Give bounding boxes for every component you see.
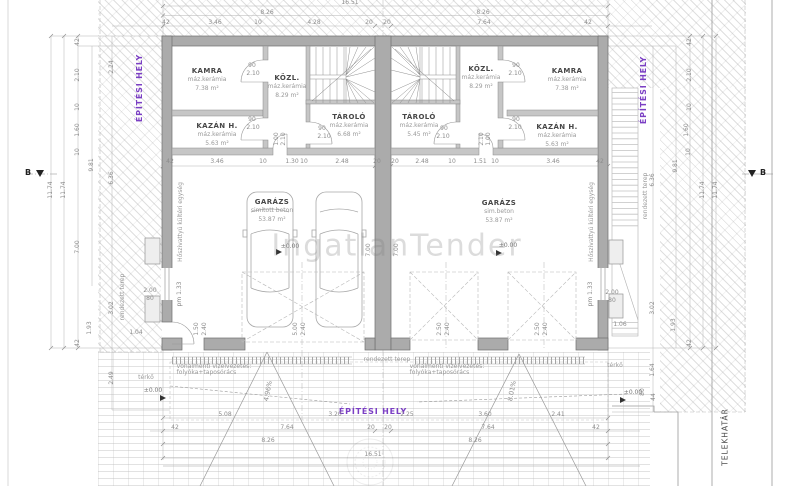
dim-label: 10 (686, 148, 692, 156)
dim-label: 7.00 (394, 243, 400, 256)
dim-label: 90 (248, 63, 256, 69)
dim-label: 10 (300, 159, 308, 165)
drain-note-right: vonalmenti vízelvezetés: folyóka+taposór… (410, 364, 485, 376)
dim-label: 10 (75, 148, 81, 156)
dim-label: 2.40 (543, 322, 549, 335)
dim-label: 2.40 (202, 322, 208, 335)
dim-label: 44 (651, 393, 657, 401)
epitesi-hely-right: ÉPÍTÉSI HELY (640, 56, 648, 124)
dim-label: 10 (687, 103, 693, 111)
dim-label: 3.02 (650, 301, 656, 314)
dim-label: 90 (248, 117, 256, 123)
dim-label: 2.10 (246, 125, 259, 131)
dim-label: 11.74 (48, 181, 54, 198)
dim-label: 1.64 (650, 363, 656, 376)
dim-label: 3.46 (208, 20, 221, 26)
section-marker-left: B (25, 169, 31, 177)
epitesi-hely-bottom: ÉPÍTÉSI HELY (339, 408, 407, 416)
dim-label: 8.26 (468, 438, 481, 444)
dim-label: 7.64 (280, 425, 293, 431)
room-right-kazan: KAZÁN H. máz.kerámia 5.63 m² (536, 123, 577, 149)
dim-label: 7.00 (366, 243, 372, 256)
dim-label: 1.06 (613, 322, 626, 328)
dim-label: 1.60 (684, 123, 690, 136)
dim-label: 7.64 (481, 425, 494, 431)
dim-label: 2.40 (445, 322, 451, 335)
dim-label: 1.60 (75, 123, 81, 136)
floor-plan: KAMRA máz.kerámia 7.38 m² KÖZL. máz.kerá… (0, 0, 800, 486)
dim-label: 2.48 (335, 159, 348, 165)
dim-label: 2.10 (508, 125, 521, 131)
dim-label: 10 (491, 159, 499, 165)
dim-label: 1.93 (671, 318, 677, 331)
dim-label: 2.49 (109, 371, 115, 384)
room-left-kazan: KAZÁN H. máz.kerámia 5.63 m² (196, 122, 237, 148)
dim-label: 2.10 (246, 71, 259, 77)
dim-label: 8.26 (261, 438, 274, 444)
dim-label: 1.00 (486, 132, 492, 145)
section-marker-right: B (760, 169, 766, 177)
dim-label: 2.10 (75, 68, 81, 81)
dim-label: 10 (75, 103, 81, 111)
dim-label: 2.10 (436, 134, 449, 140)
dim-label: 5.08 (218, 412, 231, 418)
dim-label: 42 (75, 339, 81, 347)
dim-label: pm 1.33 (588, 282, 594, 307)
dim-label: 2.00 (143, 288, 156, 294)
dim-label: 2.10 (687, 68, 693, 81)
dim-label: 2.24 (109, 60, 115, 73)
dim-label: 90 (440, 126, 448, 132)
dim-label: 2.10 (508, 71, 521, 77)
dim-label: 80 (640, 388, 646, 396)
dim-label: 10 (259, 159, 267, 165)
room-left-kozl: KÖZL. máz.kerámia 8.29 m² (268, 74, 307, 100)
dim-label: pm 1.33 (177, 282, 183, 307)
dim-label: 90 (512, 63, 520, 69)
terko-note-right: térkő (607, 363, 623, 369)
dim-label: 20 (373, 159, 381, 165)
dim-label: 10 (448, 159, 456, 165)
dim-label: 2.48 (415, 159, 428, 165)
dim-label: 4.28 (307, 20, 320, 26)
dim-label: 2.10 (479, 132, 485, 145)
room-right-kozl: KÖZL. máz.kerámia 8.29 m² (462, 65, 501, 91)
dim-label: 11.74 (713, 181, 719, 198)
dim-label: 1.50 (194, 322, 200, 335)
room-left-kamra: KAMRA máz.kerámia 7.38 m² (188, 67, 227, 93)
terep-note-bottom: rendezett terep (364, 357, 411, 363)
dim-label: 42 (687, 339, 693, 347)
dim-label: 10 (254, 20, 262, 26)
dim-label: 90 (512, 117, 520, 123)
room-right-garazs: GARÁZS sim.beton 53.87 m² (482, 199, 517, 225)
heatpump-note-right: Hőszivattyú kültéri egység (589, 182, 595, 262)
room-left-tarolo: TÁROLÓ máz.kerámia 6.68 m² (330, 113, 369, 139)
dim-label: 3.20 (328, 412, 341, 418)
dim-label: 42 (596, 159, 604, 165)
dim-label: 42 (171, 425, 179, 431)
dim-label: 5.00 (293, 322, 299, 335)
dim-label: 7.64 (477, 20, 490, 26)
dim-label: 16.51 (341, 0, 358, 6)
dim-label: 20 (391, 159, 399, 165)
level-driveway-left: ±0.00 (144, 388, 162, 394)
dim-label: 3.46 (210, 159, 223, 165)
drain-note-left: vonalmenti vízelvezetés: folyóka+taposór… (177, 364, 252, 376)
dim-label: 9.81 (89, 158, 95, 171)
dim-label: 90 (318, 126, 326, 132)
dim-label: 6.36 (650, 173, 656, 186)
dim-label: 3.46 (546, 159, 559, 165)
telekhatar-label: TELEKHATÁR (721, 408, 729, 466)
dim-label: 1.30 (285, 159, 298, 165)
heatpump-note-left: Hőszivattyú kültéri egység (178, 182, 184, 262)
dim-label: 7.00 (75, 240, 81, 253)
dim-label: 80 (146, 296, 154, 302)
room-left-garazs: GARÁZS simított beton 53.87 m² (251, 198, 293, 224)
dim-label: 8.26 (260, 10, 273, 16)
dim-label: 42 (75, 38, 81, 46)
dim-label: 2.41 (551, 412, 564, 418)
dim-label: 9.81 (673, 159, 679, 172)
dim-label: 1.51 (473, 159, 486, 165)
dim-label: 2.10 (281, 132, 287, 145)
dim-label: 3.60 (478, 412, 491, 418)
dim-label: 42 (592, 425, 600, 431)
dim-label: 2.50 (535, 322, 541, 335)
dim-label: 11.74 (61, 181, 67, 198)
dim-label: 2.40 (301, 322, 307, 335)
dim-label: 20 (367, 425, 375, 431)
dim-label: 16.51 (364, 452, 381, 458)
dim-label: 1.93 (87, 321, 93, 334)
terep-note-left: rendezett terep (120, 274, 126, 321)
dim-label: 20 (384, 425, 392, 431)
dim-label: 80 (608, 298, 616, 304)
dim-label: 2.50 (437, 322, 443, 335)
dim-label: 42 (166, 159, 174, 165)
room-right-kamra: KAMRA máz.kerámia 7.38 m² (548, 67, 587, 93)
dim-label: 2.10 (317, 134, 330, 140)
dim-label: 42 (162, 20, 170, 26)
room-right-tarolo: TÁROLÓ máz.kerámia 5.45 m² (400, 113, 439, 139)
dim-label: 20 (383, 20, 391, 26)
epitesi-hely-left: ÉPÍTÉSI HELY (136, 54, 144, 122)
dim-label: 2.00 (605, 290, 618, 296)
dim-label: 8.26 (476, 10, 489, 16)
dim-label: 11.74 (700, 181, 706, 198)
dim-label: 42 (687, 38, 693, 46)
dim-label: 20 (365, 20, 373, 26)
dim-label: 1.04 (129, 330, 142, 336)
dim-label: 42 (584, 20, 592, 26)
dim-label: 2.25 (400, 412, 413, 418)
terko-note-left: térkő (138, 375, 154, 381)
dim-label: 6.36 (109, 171, 115, 184)
dim-label: 3.02 (109, 301, 115, 314)
